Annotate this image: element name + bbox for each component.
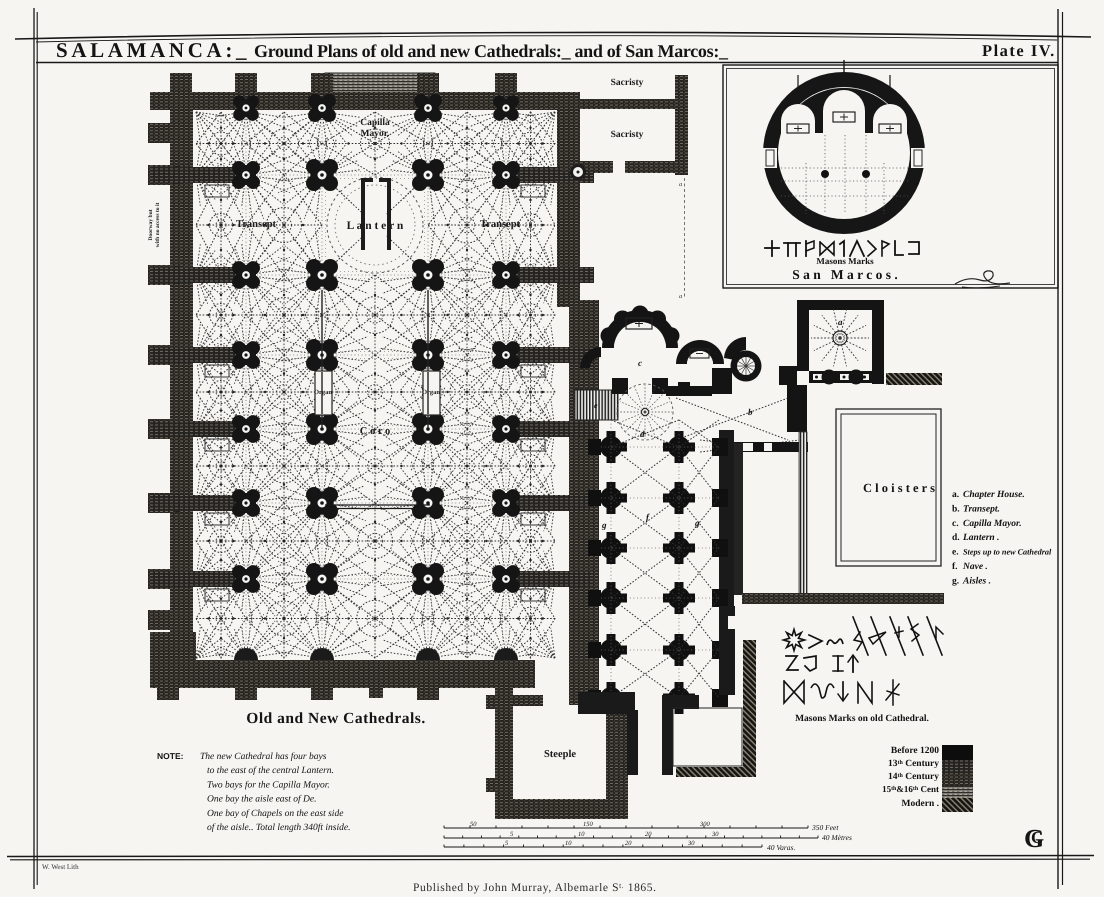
svg-text:15th&16th Cent: 15th&16th Cent: [882, 784, 939, 794]
svg-text:Transept: Transept: [480, 219, 521, 230]
svg-text:40 Mètres: 40 Mètres: [822, 833, 852, 842]
svg-text:Modern .: Modern .: [902, 799, 939, 809]
svg-text:SALAMANCA:_: SALAMANCA:_: [56, 38, 248, 62]
svg-text:150: 150: [583, 821, 594, 828]
svg-text:Nave .: Nave .: [962, 562, 988, 572]
svg-text:with no access to it: with no access to it: [155, 202, 161, 247]
svg-text:L a n t e r n: L a n t e r n: [347, 220, 404, 232]
svg-text:c.: c.: [952, 519, 959, 529]
svg-text:a: a: [838, 317, 843, 327]
svg-text:of the aisle.. Total length 34: of the aisle.. Total length 340ft inside…: [207, 823, 350, 833]
svg-text:Transept: Transept: [236, 219, 277, 230]
svg-text:W. West Lith: W. West Lith: [42, 863, 79, 871]
svg-text:g: g: [694, 518, 700, 528]
svg-text:Masons Marks on old Cathedral.: Masons Marks on old Cathedral.: [795, 714, 929, 724]
svg-text:Mayor.: Mayor.: [361, 129, 390, 139]
svg-text:The new Cathedral has four bay: The new Cathedral has four bays: [200, 752, 327, 762]
svg-text:Sacristy: Sacristy: [611, 130, 644, 140]
svg-text:One bay of Chapels on the east: One bay of Chapels on the east side: [207, 809, 343, 819]
svg-text:14th Century: 14th Century: [888, 772, 939, 782]
svg-text:Steeple: Steeple: [544, 749, 576, 760]
svg-text:Organ: Organ: [314, 389, 332, 396]
svg-text:g.: g.: [952, 576, 959, 586]
svg-text:S a n M a r c o s .: S a n M a r c o s .: [792, 267, 898, 282]
svg-text:a: a: [679, 181, 682, 188]
svg-text:20: 20: [625, 840, 632, 847]
svg-text:Old and New Cathedrals.: Old and New Cathedrals.: [246, 710, 425, 727]
svg-text:c: c: [638, 358, 642, 368]
svg-text:to the east of the central Lan: to the east of the central Lantern.: [207, 766, 334, 776]
svg-text:Chapter House.: Chapter House.: [963, 490, 1025, 500]
svg-text:50: 50: [470, 821, 477, 828]
svg-text:Aisles .: Aisles .: [962, 576, 991, 586]
svg-text:Doorway but: Doorway but: [148, 209, 154, 240]
svg-text:d.: d.: [952, 533, 960, 543]
svg-text:C: C: [1031, 828, 1043, 847]
svg-text:a.: a.: [952, 490, 959, 500]
svg-text:Masons Marks: Masons Marks: [816, 256, 874, 266]
svg-text:20: 20: [645, 831, 652, 838]
svg-text:Capilla Mayor.: Capilla Mayor.: [963, 519, 1022, 529]
svg-text:Sacristy: Sacristy: [611, 78, 644, 88]
svg-text:Lantern .: Lantern .: [962, 533, 999, 543]
svg-text:13th Century: 13th Century: [888, 759, 939, 769]
svg-text:Organ: Organ: [422, 389, 440, 396]
svg-text:350 Feet: 350 Feet: [811, 823, 839, 832]
svg-text:Plate IV.: Plate IV.: [982, 41, 1056, 60]
svg-text:g: g: [601, 520, 607, 530]
svg-text:Ground Plans of old and new Ca: Ground Plans of old and new Cathedrals:_…: [254, 41, 729, 61]
svg-text:300: 300: [699, 821, 711, 828]
svg-text:a: a: [679, 293, 682, 300]
svg-text:Before 1200: Before 1200: [891, 746, 939, 756]
svg-text:Two bays for the Capilla Mayor: Two bays for the Capilla Mayor.: [207, 780, 330, 790]
svg-text:NOTE:: NOTE:: [157, 751, 184, 761]
svg-text:30: 30: [687, 840, 695, 847]
svg-text:e.: e.: [952, 548, 959, 558]
svg-text:10: 10: [565, 840, 572, 847]
svg-text:One bay the aisle east of De.: One bay the aisle east of De.: [207, 795, 317, 805]
svg-text:10: 10: [578, 831, 585, 838]
svg-text:e: e: [594, 401, 598, 410]
svg-text:b.: b.: [952, 504, 960, 514]
svg-text:f.: f.: [952, 562, 958, 572]
svg-text:Transept.: Transept.: [963, 504, 1000, 514]
svg-text:C l o i s t e r s: C l o i s t e r s: [863, 481, 935, 495]
svg-text:40 Varas.: 40 Varas.: [767, 843, 795, 852]
svg-text:Capilla: Capilla: [360, 118, 390, 128]
svg-text:Steps up to new Cathedral: Steps up to new Cathedral: [963, 548, 1052, 557]
svg-text:C o r o: C o r o: [360, 426, 390, 437]
svg-text:30: 30: [711, 831, 719, 838]
